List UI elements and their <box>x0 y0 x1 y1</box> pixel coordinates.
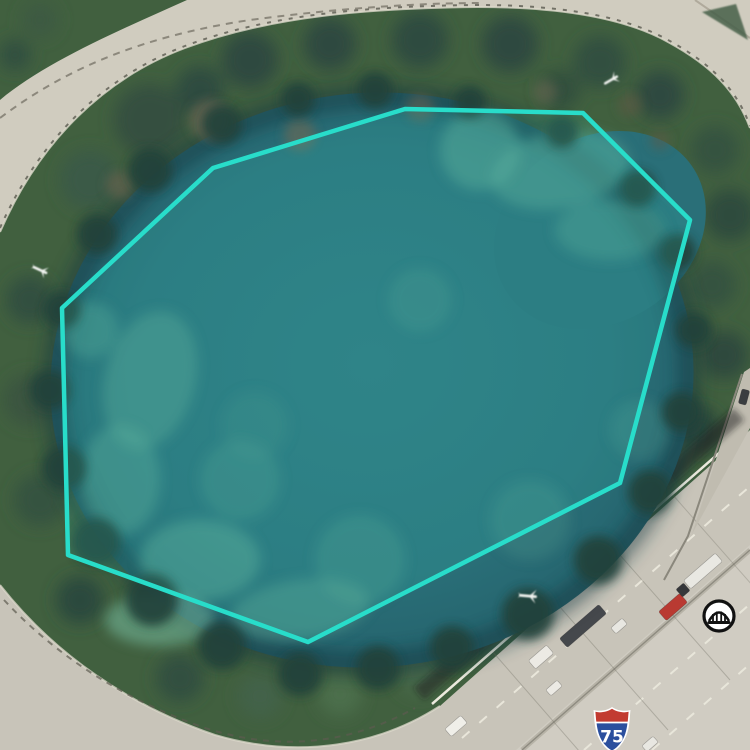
bridge-marker[interactable] <box>704 601 734 631</box>
satellite-canvas: 75 <box>0 0 750 750</box>
map-view[interactable]: 75 <box>0 0 750 750</box>
route-number: 75 <box>600 728 624 748</box>
